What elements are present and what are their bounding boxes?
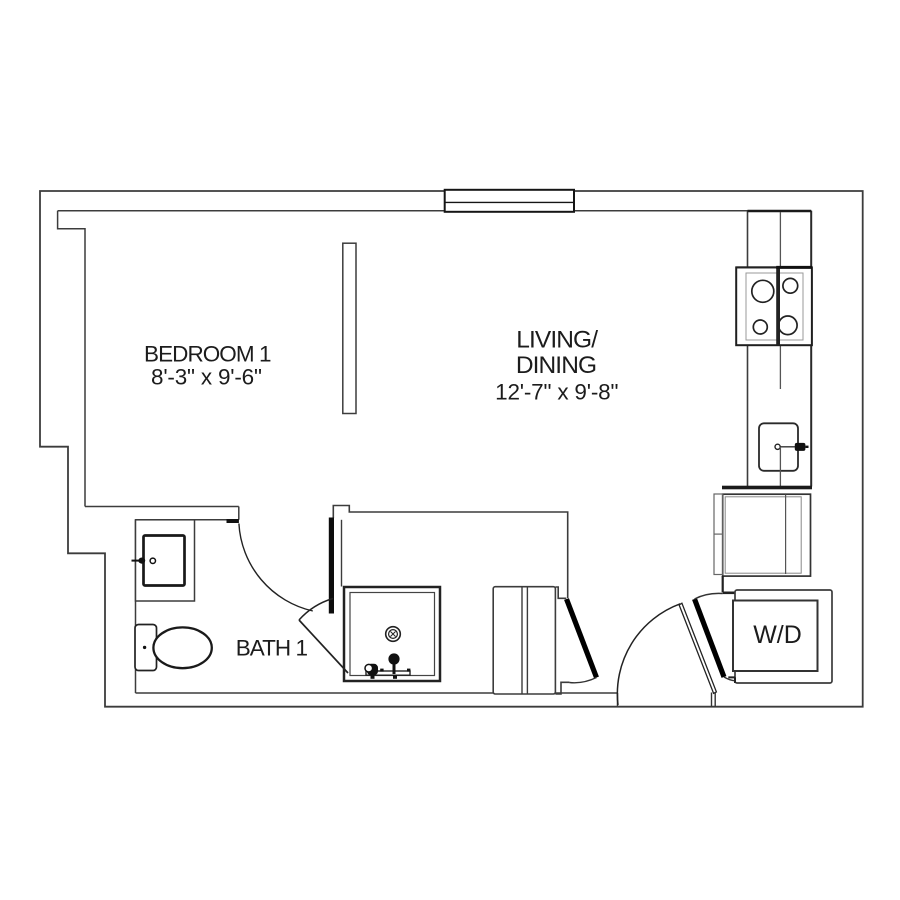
svg-text:DINING: DINING [516, 352, 596, 379]
svg-text:LIVING/: LIVING/ [516, 327, 598, 354]
svg-text:W/D: W/D [753, 621, 802, 649]
svg-text:BEDROOM 1: BEDROOM 1 [144, 341, 271, 366]
svg-text:12'-7" x 9'-8": 12'-7" x 9'-8" [495, 380, 618, 405]
svg-text:8'-3" x 9'-6": 8'-3" x 9'-6" [151, 365, 262, 390]
svg-text:BATH 1: BATH 1 [236, 636, 308, 661]
